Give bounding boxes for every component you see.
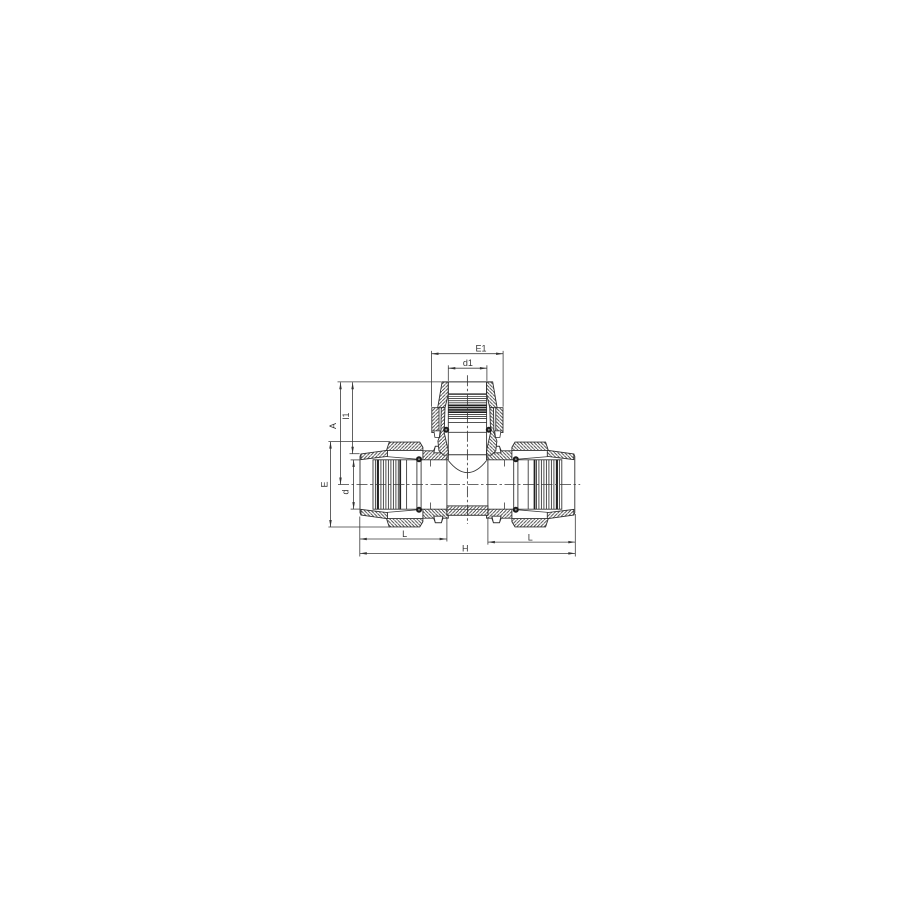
svg-text:E: E: [319, 481, 329, 487]
svg-text:l1: l1: [341, 412, 351, 419]
svg-text:d1: d1: [463, 358, 473, 368]
svg-text:L: L: [528, 532, 533, 542]
svg-text:A: A: [328, 423, 338, 429]
svg-text:E1: E1: [475, 343, 486, 353]
svg-text:d: d: [340, 489, 350, 494]
svg-text:L: L: [402, 529, 407, 539]
svg-text:H: H: [462, 544, 469, 554]
